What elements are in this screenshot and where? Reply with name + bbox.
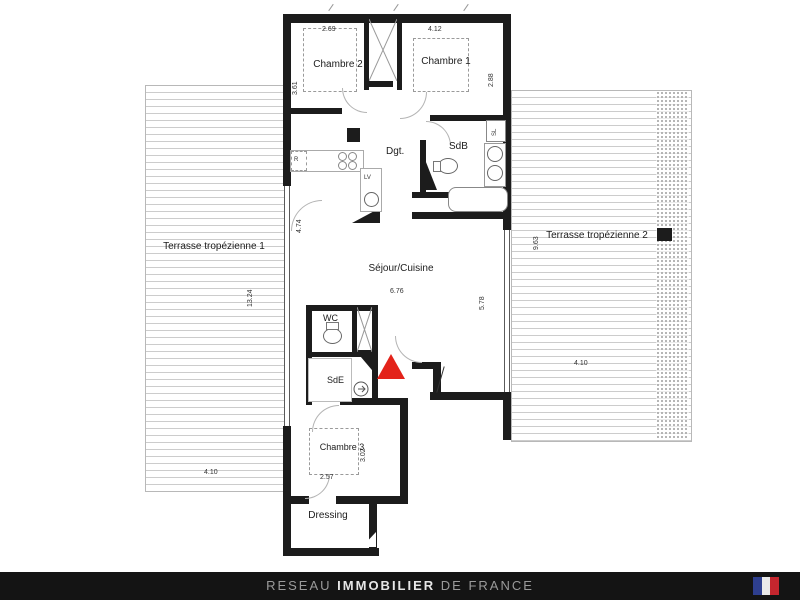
floor-plan-canvas: Chambre 2 Chambre 1 Dgt. SdB Séjour/Cuis… — [0, 0, 800, 600]
terrace-1-area — [145, 85, 285, 492]
wall — [400, 398, 408, 504]
dim-chambre2-height: 3.61 — [292, 81, 299, 95]
closet-cross-icon — [357, 307, 372, 352]
footer-brand-text: RESEAU IMMOBILIER DE FRANCE — [0, 578, 800, 593]
wc-toilet-tank — [326, 322, 339, 330]
bay-window-left — [284, 186, 290, 426]
stove-burner-icon — [338, 161, 347, 170]
dim-chambre1-height: 2.88 — [488, 73, 495, 87]
room-label-terrasse1: Terrasse tropézienne 1 — [148, 241, 280, 252]
wall — [412, 362, 437, 369]
bathtub — [448, 187, 508, 212]
dim-terrasse1-width: 4.10 — [204, 469, 218, 476]
dim-sejour-width: 6.76 — [390, 288, 404, 295]
dimension-tick — [463, 4, 468, 11]
footer-bar: RESEAU IMMOBILIER DE FRANCE — [0, 572, 800, 600]
wall — [283, 548, 379, 556]
room-label-chambre2: Chambre 2 — [303, 59, 373, 70]
sdb-toilet-icon — [438, 158, 458, 174]
dim-sejour-height: 5.78 — [479, 296, 486, 310]
dim-chambre1-width: 4.12 — [428, 26, 442, 33]
door-arc — [395, 336, 422, 363]
room-label-dgt: Dgt. — [386, 146, 404, 157]
kitchen-sink-icon — [364, 192, 379, 207]
terrace-2-planter — [657, 228, 672, 241]
wall — [412, 212, 511, 219]
wall — [397, 14, 402, 90]
room-label-sdb: SdB — [449, 141, 468, 152]
french-flag-icon — [753, 577, 779, 595]
dim-kitchen-depth: 4.74 — [296, 219, 303, 233]
terrace-2-gravel-texture — [656, 91, 689, 439]
dimension-tick — [328, 4, 333, 11]
wall — [430, 392, 511, 400]
room-label-dressing: Dressing — [298, 510, 358, 521]
wall — [369, 81, 393, 87]
dim-terrasse1-height: 13.24 — [247, 289, 254, 307]
refrigerator-label: R — [294, 157, 298, 163]
footer-brand-suffix: DE FRANCE — [441, 578, 534, 593]
room-label-sde: SdE — [327, 375, 344, 385]
sdb-toilet-tank — [433, 161, 441, 172]
dim-chambre3-width: 2.57 — [320, 474, 334, 481]
dim-terrasse2-height: 9.63 — [533, 236, 540, 250]
dryer-label: SL — [492, 129, 498, 136]
dishwasher-label: LV — [364, 175, 371, 181]
bay-window-right — [504, 230, 510, 392]
door-arc — [400, 92, 427, 119]
dim-terrasse2-width: 4.10 — [574, 360, 588, 367]
footer-brand-emphasis: IMMOBILIER — [337, 578, 435, 593]
wall — [412, 192, 450, 198]
wall — [290, 108, 342, 114]
wc-toilet-icon — [323, 328, 342, 344]
room-label-chambre1: Chambre 1 — [410, 56, 482, 67]
closet-cross-icon — [369, 19, 397, 81]
room-label-terrasse2: Terrasse tropézienne 2 — [541, 230, 653, 241]
wall — [283, 426, 291, 556]
dimension-tick — [393, 4, 398, 11]
shower-drain-icon — [352, 380, 370, 398]
footer-brand-prefix: RESEAU — [266, 578, 331, 593]
stove-burner-icon — [348, 161, 357, 170]
entrance-marker-triangle — [377, 354, 405, 379]
stove-burner-icon — [338, 152, 347, 161]
wall — [347, 128, 360, 142]
sdb-basin-icon — [487, 165, 503, 181]
dim-chambre3-height: 3.02 — [360, 448, 367, 462]
room-label-sejour: Séjour/Cuisine — [355, 263, 447, 274]
wall — [336, 496, 408, 504]
room-label-wc: WC — [323, 313, 338, 323]
stove-burner-icon — [348, 152, 357, 161]
sdb-basin-icon — [487, 146, 503, 162]
dim-chambre2-width: 2.69 — [322, 26, 336, 33]
door-arc — [426, 121, 451, 146]
